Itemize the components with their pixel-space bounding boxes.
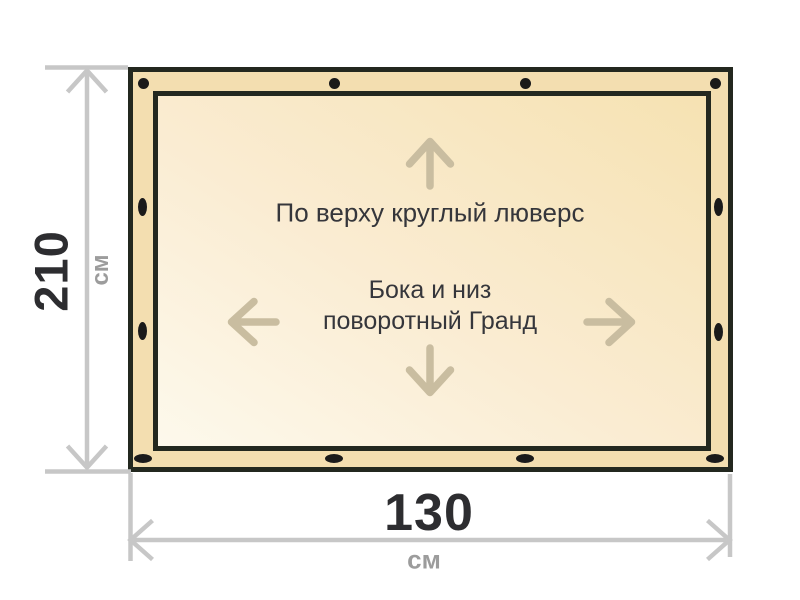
width-arrowhead-left-icon bbox=[131, 521, 153, 560]
height-dimension-unit: см bbox=[87, 254, 115, 285]
height-dimension-value: 210 bbox=[24, 230, 79, 311]
width-dimension-value: 130 bbox=[384, 483, 474, 543]
grommet-bottom-2 bbox=[325, 454, 343, 463]
width-arrowhead-right-icon bbox=[708, 521, 730, 560]
grommet-left-2 bbox=[138, 322, 147, 340]
grommet-right-1 bbox=[714, 198, 723, 216]
side-fastening-note-line1: Бока и низ bbox=[323, 275, 537, 306]
grommet-top-3 bbox=[520, 78, 531, 89]
grommet-bottom-1 bbox=[134, 454, 152, 463]
grommet-bottom-3 bbox=[516, 454, 534, 463]
grommet-bottom-4 bbox=[706, 454, 724, 463]
grommet-top-4 bbox=[710, 78, 721, 89]
grommet-top-2 bbox=[329, 78, 340, 89]
tarp-inner-panel bbox=[153, 91, 711, 451]
height-arrowhead-down-icon bbox=[68, 446, 107, 468]
top-fastening-note: По верху круглый люверс bbox=[276, 198, 585, 229]
side-fastening-note: Бока и низ поворотный Гранд bbox=[323, 275, 537, 337]
side-fastening-note-line2: поворотный Гранд bbox=[323, 306, 537, 337]
size-diagram: По верху круглый люверс Бока и низ повор… bbox=[0, 0, 800, 600]
width-dimension-unit: см bbox=[407, 545, 441, 576]
grommet-top-1 bbox=[138, 78, 149, 89]
grommet-right-2 bbox=[714, 323, 723, 341]
height-arrowhead-up-icon bbox=[68, 71, 107, 93]
grommet-left-1 bbox=[138, 198, 147, 216]
